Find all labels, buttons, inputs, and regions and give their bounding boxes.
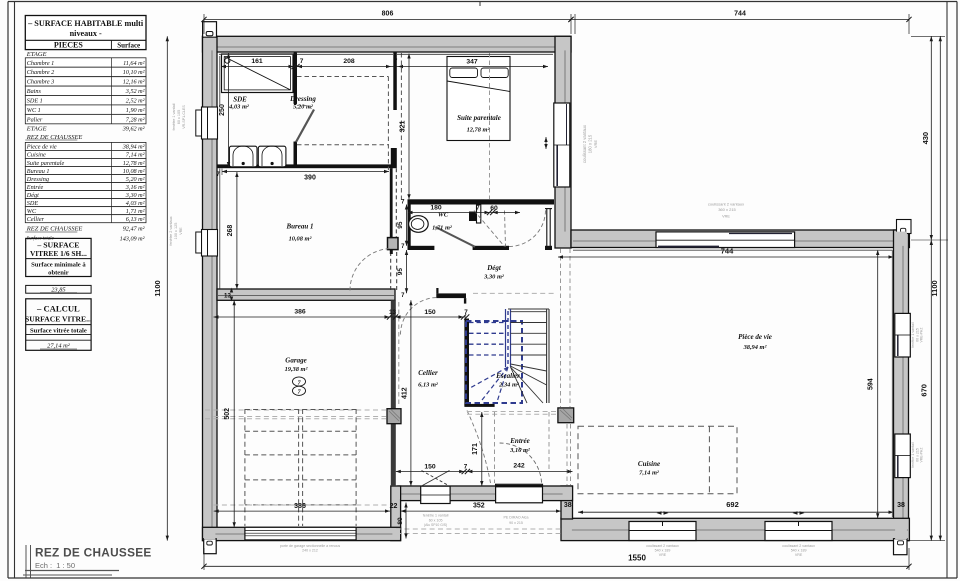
svg-text:13: 13 (224, 293, 231, 300)
svg-text:coulissant 2 vantaux: coulissant 2 vantaux (782, 544, 815, 548)
svg-text:REZ DE CHAUSSEE: REZ DE CHAUSSEE (35, 546, 152, 560)
svg-text:10,08 m²: 10,08 m² (289, 236, 313, 243)
svg-text:Piece de vie: Piece de vie (26, 144, 57, 151)
svg-text:PIECES: PIECES (54, 40, 83, 49)
svg-text:– SURFACE HABITABLE multi: – SURFACE HABITABLE multi (27, 19, 144, 28)
svg-text:VITREE 1/6 SH...: VITREE 1/6 SH... (30, 249, 87, 258)
svg-text:208: 208 (343, 58, 355, 65)
svg-text:744: 744 (721, 247, 734, 256)
svg-text:5,20 m²: 5,20 m² (126, 176, 145, 183)
svg-text:180 x 215: 180 x 215 (588, 134, 593, 153)
svg-text:3,30 m²: 3,30 m² (483, 274, 505, 281)
svg-text:Surface: Surface (117, 41, 140, 49)
svg-text:80: 80 (397, 517, 404, 525)
svg-text:1,71 m²: 1,71 m² (126, 208, 145, 215)
svg-text:ETAGE: ETAGE (26, 126, 47, 133)
svg-text:92,47 m²: 92,47 m² (123, 226, 145, 233)
svg-text:670: 670 (920, 384, 929, 397)
svg-text:100 x 125: 100 x 125 (174, 223, 178, 240)
svg-text:692: 692 (726, 500, 739, 509)
svg-text:VRE: VRE (722, 215, 730, 219)
svg-text:12,78 m²: 12,78 m² (467, 127, 491, 134)
svg-text:coulissant 2 vantaux: coulissant 2 vantaux (646, 544, 679, 548)
svg-text:19,38 m²: 19,38 m² (285, 366, 309, 373)
svg-text:60: 60 (490, 205, 498, 212)
svg-text:fenêtre 1 vantail: fenêtre 1 vantail (423, 514, 449, 518)
svg-text:fenêtre 2 vantaux: fenêtre 2 vantaux (169, 216, 173, 245)
svg-text:Chambre 2: Chambre 2 (27, 69, 54, 76)
svg-text:10,10 m²: 10,10 m² (123, 69, 145, 76)
svg-text:fenêtre 1 vantail: fenêtre 1 vantail (911, 322, 915, 348)
svg-text:VRE-PHZ: VRE-PHZ (920, 328, 924, 343)
svg-text:806: 806 (382, 11, 394, 18)
svg-text:WC: WC (27, 208, 37, 215)
svg-text:386: 386 (294, 503, 306, 510)
svg-text:Cellier: Cellier (418, 369, 438, 377)
svg-text:38,94 m²: 38,94 m² (743, 344, 768, 351)
svg-text:Garage: Garage (285, 357, 306, 365)
svg-text:Suite parentale: Suite parentale (27, 160, 65, 167)
svg-text:1100: 1100 (930, 280, 939, 296)
svg-text:ETAGE: ETAGE (26, 51, 47, 58)
svg-text:REZ DE CHAUSSEE: REZ DE CHAUSSEE (26, 226, 83, 233)
svg-text:390: 390 (304, 175, 316, 182)
svg-text:95: 95 (397, 268, 404, 276)
svg-text:Bureau 1: Bureau 1 (285, 223, 313, 231)
svg-text:Dégt: Dégt (486, 264, 502, 272)
svg-text:10,08 m²: 10,08 m² (123, 168, 145, 175)
svg-text:Escalier: Escalier (495, 372, 520, 380)
svg-text:7: 7 (394, 58, 398, 65)
svg-text:coulissant 2 vantaux: coulissant 2 vantaux (582, 124, 587, 163)
svg-text:150: 150 (424, 309, 436, 316)
svg-text:347: 347 (466, 59, 478, 66)
svg-text:7,28 m²: 7,28 m² (126, 116, 145, 123)
svg-text:PE DIRAO Alca: PE DIRAO Alca (504, 516, 529, 520)
svg-text:porte de garage sectionnelle a: porte de garage sectionnelle a renous (280, 544, 341, 548)
svg-text:540 x 189: 540 x 189 (791, 549, 807, 553)
svg-text:niveaux -: niveaux - (70, 29, 102, 38)
svg-text:412: 412 (401, 387, 408, 399)
svg-text:7,14 m²: 7,14 m² (126, 152, 145, 159)
svg-text:38,94 m²: 38,94 m² (122, 144, 145, 151)
svg-text:1550: 1550 (628, 554, 646, 563)
svg-text:744: 744 (734, 11, 746, 18)
svg-text:VRE: VRE (179, 227, 183, 235)
svg-text:7: 7 (464, 309, 468, 316)
svg-text:143,09 m²: 143,09 m² (120, 236, 145, 243)
svg-text:SDE: SDE (27, 200, 39, 207)
svg-text:VRE: VRE (593, 140, 598, 149)
svg-text:268: 268 (227, 225, 234, 237)
svg-text:Chambre 3: Chambre 3 (27, 79, 54, 86)
svg-text:fenêtre 1 vantail: fenêtre 1 vantail (172, 103, 176, 130)
svg-text:Palier: Palier (26, 116, 43, 123)
svg-text:– CALCUL: – CALCUL (36, 304, 80, 314)
svg-text:38: 38 (897, 502, 905, 509)
svg-text:3,30 m²: 3,30 m² (125, 192, 145, 199)
svg-text:Pièce de vie: Pièce de vie (738, 333, 772, 341)
svg-text:39,62 m²: 39,62 m² (122, 126, 145, 133)
svg-text:502: 502 (224, 408, 231, 420)
svg-text:VRE: VRE (795, 553, 803, 557)
svg-text:Cuisine: Cuisine (638, 460, 660, 468)
svg-text:22: 22 (390, 503, 398, 510)
svg-text:Chambre 1: Chambre 1 (27, 60, 54, 67)
svg-text:11,64 m²: 11,64 m² (123, 60, 144, 67)
svg-text:Ech : 1 : 50: Ech : 1 : 50 (35, 561, 75, 570)
svg-text:Cuisine: Cuisine (27, 152, 46, 159)
svg-text:fenêtre 1 vantail: fenêtre 1 vantail (911, 442, 915, 468)
svg-text:Bains: Bains (27, 88, 42, 95)
svg-text:3,16 m²: 3,16 m² (125, 184, 145, 191)
svg-text:1,71 m²: 1,71 m² (432, 225, 453, 232)
svg-text:360 x 215: 360 x 215 (718, 207, 736, 212)
svg-text:60 x 105: 60 x 105 (429, 518, 443, 522)
svg-text:6,13 m²: 6,13 m² (418, 382, 439, 389)
svg-text:5,20 m²: 5,20 m² (293, 104, 314, 111)
svg-text:594: 594 (868, 378, 875, 390)
svg-text:SURFACE VITRE...: SURFACE VITRE... (25, 315, 92, 324)
svg-text:coulissant 2 vantaux: coulissant 2 vantaux (708, 202, 744, 207)
svg-text:430: 430 (921, 132, 930, 145)
svg-text:27,14 m²: 27,14 m² (47, 343, 70, 350)
svg-text:7: 7 (464, 463, 468, 470)
svg-text:Entrée: Entrée (26, 184, 44, 191)
svg-text:3,16 m²: 3,16 m² (509, 447, 531, 454)
svg-text:1100: 1100 (153, 280, 162, 296)
svg-text:7: 7 (476, 205, 480, 212)
svg-text:95: 95 (397, 221, 404, 229)
svg-text:SDE: SDE (233, 96, 247, 104)
svg-text:4,03 m²: 4,03 m² (228, 104, 250, 111)
svg-text:3,52 m²: 3,52 m² (125, 88, 145, 95)
svg-text:Dressing: Dressing (289, 95, 316, 103)
svg-text:60 x 105: 60 x 105 (177, 110, 181, 125)
svg-text:171: 171 (472, 443, 479, 455)
svg-text:386: 386 (294, 309, 306, 316)
svg-text:13: 13 (389, 309, 397, 316)
svg-text:240 x 212: 240 x 212 (302, 549, 318, 553)
svg-text:90 x 215: 90 x 215 (509, 521, 523, 525)
svg-text:242: 242 (513, 463, 525, 470)
svg-text:Entrée: Entrée (509, 437, 529, 445)
svg-text:WC 1: WC 1 (27, 107, 41, 114)
svg-text:Bureau 1: Bureau 1 (27, 168, 50, 175)
svg-text:352: 352 (473, 503, 485, 510)
svg-text:2,34 m²: 2,34 m² (498, 382, 520, 389)
svg-text:161: 161 (251, 58, 263, 65)
svg-text:– SURFACE: – SURFACE (36, 241, 79, 250)
svg-text:7: 7 (300, 58, 304, 65)
svg-text:321: 321 (400, 120, 407, 132)
svg-text:1,90 m²: 1,90 m² (126, 107, 145, 114)
svg-text:250: 250 (219, 104, 226, 116)
svg-text:VR-SP1-CLES: VR-SP1-CLES (182, 105, 186, 129)
svg-text:Suite parentale: Suite parentale (457, 114, 501, 122)
svg-text:4,03 m²: 4,03 m² (126, 200, 145, 207)
svg-text:2,52 m²: 2,52 m² (126, 98, 145, 105)
svg-text:540 x 189: 540 x 189 (655, 549, 671, 553)
svg-text:7,14 m²: 7,14 m² (639, 470, 660, 477)
svg-text:6,13 m²: 6,13 m² (126, 216, 145, 223)
svg-text:38: 38 (564, 502, 572, 509)
svg-text:Dressing: Dressing (26, 176, 49, 183)
svg-text:VRE-PHZ: VRE-PHZ (920, 448, 924, 463)
svg-text:150: 150 (424, 464, 436, 471)
svg-text:obtenir: obtenir (48, 269, 69, 276)
svg-text:Cellier: Cellier (27, 216, 45, 223)
svg-text:SDE 1: SDE 1 (27, 98, 43, 105)
svg-text:(Alu SP10 G/S): (Alu SP10 G/S) (424, 523, 447, 527)
svg-text:12,78 m²: 12,78 m² (123, 160, 145, 167)
svg-text:12,16 m²: 12,16 m² (123, 79, 145, 86)
svg-text:Dégt: Dégt (26, 192, 39, 199)
svg-text:Surface minimale à: Surface minimale à (31, 262, 86, 269)
svg-text:VRE: VRE (659, 553, 667, 557)
svg-text:180: 180 (430, 205, 442, 212)
svg-text:Surface vitrée totale: Surface vitrée totale (30, 328, 87, 335)
